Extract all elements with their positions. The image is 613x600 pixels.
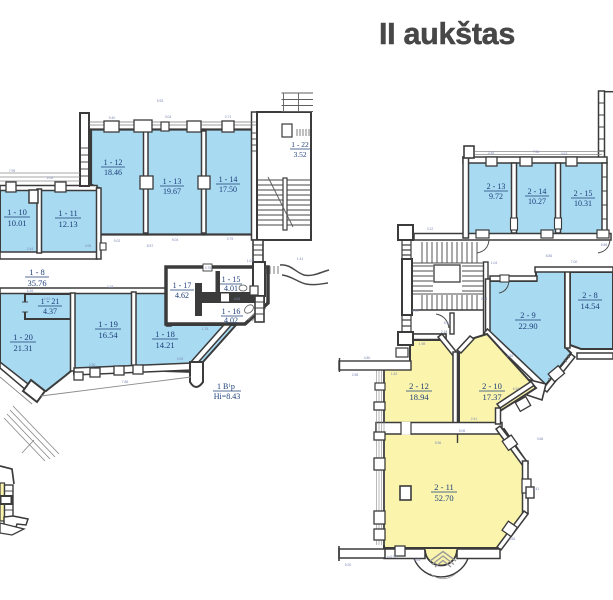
svg-text:2 - 12: 2 - 12 bbox=[409, 381, 429, 391]
svg-text:2.06: 2.06 bbox=[85, 244, 92, 248]
svg-text:1.01: 1.01 bbox=[247, 259, 254, 263]
svg-text:7.56: 7.56 bbox=[533, 150, 540, 154]
svg-text:5.96: 5.96 bbox=[435, 441, 442, 445]
svg-text:5.74: 5.74 bbox=[412, 309, 419, 313]
svg-text:1.78: 1.78 bbox=[202, 327, 209, 331]
svg-text:35.76: 35.76 bbox=[27, 278, 46, 288]
svg-text:1 - 11: 1 - 11 bbox=[58, 208, 78, 218]
svg-text:16.54: 16.54 bbox=[98, 330, 118, 340]
svg-text:1 - 12: 1 - 12 bbox=[104, 158, 123, 167]
svg-text:21.31: 21.31 bbox=[13, 343, 32, 353]
svg-text:8.57: 8.57 bbox=[147, 244, 154, 248]
svg-text:2.44: 2.44 bbox=[27, 247, 34, 251]
svg-text:4.01: 4.01 bbox=[224, 284, 238, 293]
svg-text:7.00: 7.00 bbox=[571, 260, 578, 264]
svg-text:12.13: 12.13 bbox=[58, 219, 77, 229]
svg-text:22.90: 22.90 bbox=[518, 321, 537, 331]
svg-text:1 - 22: 1 - 22 bbox=[291, 140, 309, 149]
svg-text:8.18: 8.18 bbox=[444, 321, 451, 325]
svg-text:t=0.92: t=0.92 bbox=[387, 555, 397, 559]
svg-text:7.99: 7.99 bbox=[9, 169, 16, 173]
svg-text:5.20: 5.20 bbox=[345, 563, 352, 567]
svg-text:1 - 16: 1 - 16 bbox=[222, 307, 241, 316]
svg-text:3.66: 3.66 bbox=[537, 437, 544, 441]
svg-text:1 - 19: 1 - 19 bbox=[98, 319, 118, 329]
svg-text:1 B1p: 1 B1p bbox=[217, 382, 235, 391]
svg-text:1.04: 1.04 bbox=[491, 261, 498, 265]
svg-text:1 - 10: 1 - 10 bbox=[7, 207, 27, 217]
svg-text:14.21: 14.21 bbox=[155, 340, 174, 350]
svg-text:1 - 14: 1 - 14 bbox=[219, 175, 238, 184]
svg-text:18.94: 18.94 bbox=[409, 392, 429, 402]
svg-text:18.46: 18.46 bbox=[104, 168, 122, 177]
svg-text:1 - 8: 1 - 8 bbox=[29, 267, 45, 277]
svg-text:9.40: 9.40 bbox=[109, 116, 116, 120]
svg-text:7.86: 7.86 bbox=[122, 380, 129, 384]
svg-text:10.31: 10.31 bbox=[574, 199, 592, 208]
svg-text:2.45: 2.45 bbox=[488, 151, 495, 155]
svg-text:1.62: 1.62 bbox=[391, 372, 398, 376]
svg-text:3.66: 3.66 bbox=[509, 537, 516, 541]
svg-text:2.30: 2.30 bbox=[89, 363, 96, 367]
svg-text:4.05: 4.05 bbox=[414, 558, 421, 562]
svg-text:4.37: 4.37 bbox=[43, 307, 57, 316]
svg-text:4.62: 4.62 bbox=[175, 291, 189, 300]
svg-text:8.86: 8.86 bbox=[546, 254, 553, 258]
svg-text:7.18: 7.18 bbox=[107, 285, 114, 289]
svg-text:3.52: 3.52 bbox=[293, 150, 306, 159]
svg-text:2.18: 2.18 bbox=[441, 330, 448, 334]
svg-text:2.02: 2.02 bbox=[47, 176, 54, 180]
svg-text:4.80: 4.80 bbox=[364, 356, 371, 360]
svg-text:4.76: 4.76 bbox=[205, 266, 212, 270]
svg-text:9.04: 9.04 bbox=[172, 238, 179, 242]
svg-text:6.65: 6.65 bbox=[507, 354, 514, 358]
svg-text:2.63: 2.63 bbox=[44, 297, 51, 301]
svg-text:3.12: 3.12 bbox=[427, 227, 434, 231]
svg-text:1 - 20: 1 - 20 bbox=[13, 332, 33, 342]
svg-text:2 - 9: 2 - 9 bbox=[520, 310, 536, 320]
svg-text:0.63: 0.63 bbox=[561, 152, 568, 156]
svg-text:3.04: 3.04 bbox=[165, 115, 172, 119]
svg-text:1 - 18: 1 - 18 bbox=[155, 329, 175, 339]
svg-text:1.41: 1.41 bbox=[297, 257, 304, 261]
svg-text:17.50: 17.50 bbox=[219, 185, 237, 194]
svg-text:17.37: 17.37 bbox=[482, 392, 501, 402]
svg-text:0.41: 0.41 bbox=[533, 487, 540, 491]
svg-text:9.72: 9.72 bbox=[489, 192, 503, 201]
svg-text:2 - 15: 2 - 15 bbox=[574, 189, 593, 198]
svg-text:14.54: 14.54 bbox=[580, 301, 600, 311]
svg-text:2.41: 2.41 bbox=[471, 417, 478, 421]
svg-text:1 - 13: 1 - 13 bbox=[163, 177, 182, 186]
svg-text:1 - 17: 1 - 17 bbox=[173, 281, 192, 290]
svg-text:5.93: 5.93 bbox=[157, 99, 164, 103]
svg-text:1.98: 1.98 bbox=[419, 342, 426, 346]
svg-text:2 - 14: 2 - 14 bbox=[528, 187, 547, 196]
svg-text:4.01: 4.01 bbox=[234, 297, 241, 301]
svg-text:10.27: 10.27 bbox=[528, 197, 546, 206]
svg-text:4.02: 4.02 bbox=[224, 316, 238, 325]
svg-text:2 - 11: 2 - 11 bbox=[434, 482, 454, 492]
svg-text:19.67: 19.67 bbox=[163, 187, 181, 196]
svg-text:II aukštas: II aukštas bbox=[379, 17, 515, 51]
svg-text:0.79: 0.79 bbox=[227, 237, 234, 241]
svg-text:6.34: 6.34 bbox=[513, 387, 520, 391]
svg-text:6.26: 6.26 bbox=[27, 289, 34, 293]
svg-text:1 - 15: 1 - 15 bbox=[222, 275, 241, 284]
svg-text:10.01: 10.01 bbox=[7, 218, 26, 228]
svg-text:0.71: 0.71 bbox=[225, 115, 232, 119]
svg-text:52.70: 52.70 bbox=[434, 493, 453, 503]
svg-text:0.92: 0.92 bbox=[177, 357, 184, 361]
svg-text:Hi=8.43: Hi=8.43 bbox=[214, 392, 241, 401]
svg-text:2 - 10: 2 - 10 bbox=[482, 381, 502, 391]
svg-text:6.86: 6.86 bbox=[601, 243, 608, 247]
svg-text:9.02: 9.02 bbox=[114, 239, 121, 243]
svg-text:2 - 13: 2 - 13 bbox=[487, 182, 506, 191]
svg-text:2.58: 2.58 bbox=[352, 373, 359, 377]
svg-text:2 - 8: 2 - 8 bbox=[582, 290, 598, 300]
svg-text:2.16: 2.16 bbox=[481, 297, 488, 301]
svg-text:5.06: 5.06 bbox=[459, 429, 466, 433]
